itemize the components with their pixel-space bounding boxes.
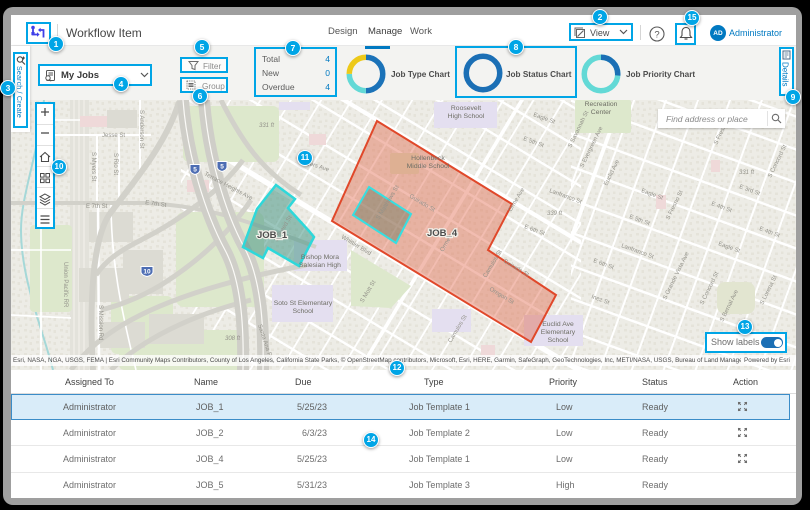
- svg-text:JOB_1: JOB_1: [257, 230, 288, 241]
- svg-text:Bishop Mora: Bishop Mora: [301, 254, 339, 261]
- svg-text:Hollenbeck: Hollenbeck: [411, 155, 445, 162]
- svg-text:S Anderson St: S Anderson St: [138, 110, 144, 149]
- svg-text:5: 5: [220, 164, 224, 171]
- svg-text:Jesse St: Jesse St: [102, 133, 125, 139]
- svg-text:?: ?: [654, 29, 659, 40]
- svg-text:Union Pacific RR: Union Pacific RR: [62, 262, 68, 308]
- svg-text:S Myers St: S Myers St: [90, 152, 96, 182]
- svg-text:Roosevelt: Roosevelt: [451, 105, 481, 112]
- svg-text:School: School: [293, 308, 314, 315]
- svg-text:308 ft: 308 ft: [225, 336, 240, 342]
- svg-text:Euclid Ave: Euclid Ave: [542, 321, 574, 328]
- svg-text:Soto St Elementary: Soto St Elementary: [274, 300, 333, 307]
- svg-text:Recreation: Recreation: [585, 101, 618, 108]
- svg-text:10: 10: [143, 269, 151, 276]
- svg-text:331 ft: 331 ft: [739, 170, 754, 176]
- svg-text:S Rio St: S Rio St: [112, 153, 118, 175]
- svg-text:339 ft: 339 ft: [547, 211, 562, 217]
- svg-text:Elementary: Elementary: [541, 329, 576, 336]
- svg-text:Middle School: Middle School: [407, 163, 450, 170]
- svg-text:High School: High School: [448, 113, 485, 120]
- svg-text:School: School: [548, 337, 569, 344]
- svg-text:Salesian High: Salesian High: [299, 262, 341, 269]
- svg-text:E 7th St: E 7th St: [86, 204, 108, 210]
- svg-text:S Mission Rd: S Mission Rd: [97, 305, 103, 340]
- svg-text:5: 5: [193, 167, 197, 174]
- svg-text:Center: Center: [591, 109, 612, 116]
- svg-text:JOB_4: JOB_4: [427, 228, 458, 239]
- svg-text:331 ft: 331 ft: [259, 123, 274, 129]
